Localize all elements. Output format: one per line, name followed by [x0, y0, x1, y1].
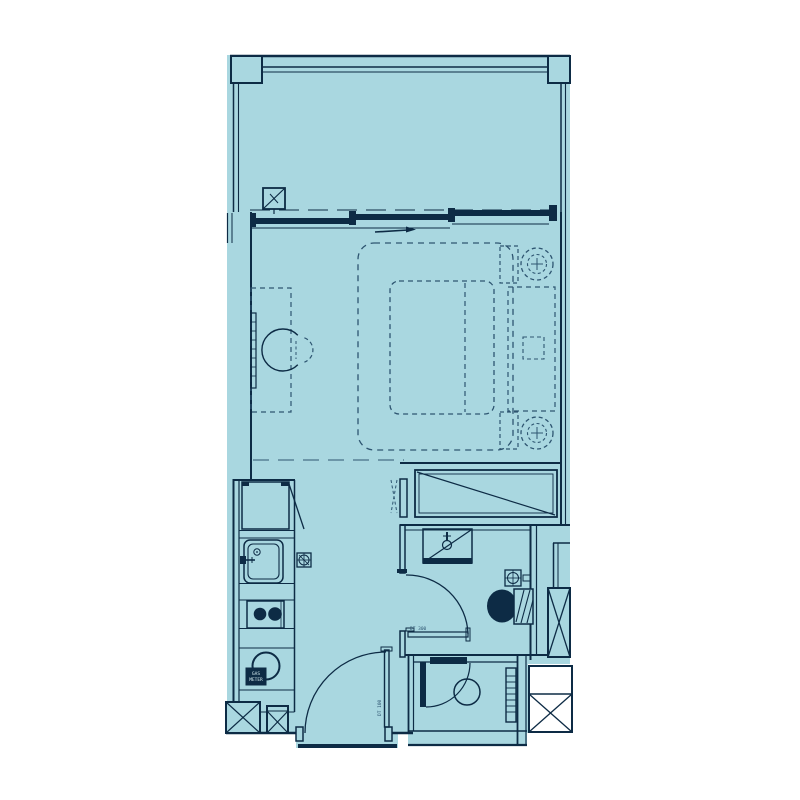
- entry-piers: [226, 702, 288, 733]
- entry-door-tag: DT 100: [377, 699, 383, 716]
- cooktop-burner: [254, 608, 267, 621]
- utility-door-leaf: [420, 662, 426, 707]
- gas-meter-label: METER: [249, 677, 263, 683]
- hatched-pier-right: [267, 706, 288, 733]
- entry-threshold: [298, 744, 397, 748]
- right-pier: [548, 56, 570, 83]
- service-shaft: [548, 588, 570, 657]
- door-lintel: [430, 657, 467, 664]
- corner-shaft: [529, 666, 572, 732]
- sliding-panel: [352, 214, 451, 220]
- cooktop-burner: [268, 607, 282, 621]
- sliding-panel: [255, 218, 352, 224]
- gas-meter-label: GAS: [252, 671, 260, 677]
- left-pier: [231, 56, 262, 83]
- sliding-panel: [451, 210, 552, 216]
- floor-plan-drawing: GAS METER DT 100: [0, 0, 800, 800]
- floor-plan: GAS METER DT 100: [0, 0, 800, 800]
- bathroom-level-tag: DT 300: [410, 626, 427, 632]
- hatched-pier-left: [226, 702, 260, 733]
- toilet: [487, 589, 533, 624]
